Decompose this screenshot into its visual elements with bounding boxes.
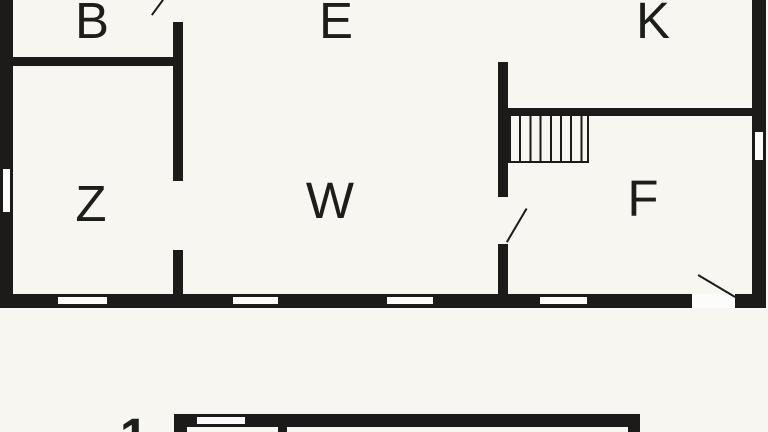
plan2-wall-left-corner	[174, 414, 187, 432]
window-right-wall	[755, 132, 763, 160]
floor-number-label: 1	[120, 411, 148, 432]
staircase	[507, 116, 589, 163]
room-label-w: W	[306, 175, 354, 226]
wall-wf-stub	[498, 244, 508, 294]
window-bottom-1	[58, 297, 107, 304]
room-label-f: F	[627, 173, 658, 224]
outer-wall-left	[0, 0, 13, 308]
floorplan-diagram: B E K Z W F 1	[0, 0, 768, 432]
wall-k-f-divider	[498, 108, 766, 116]
door-leaf-room-b	[151, 0, 164, 16]
plan2-interior-wall-stub	[278, 426, 287, 432]
outer-wall-bottom	[0, 294, 766, 308]
door-leaf-room-w	[506, 207, 528, 242]
window-bottom-4	[540, 297, 587, 304]
wall-b-z-divider	[0, 57, 183, 66]
room-label-z: Z	[75, 178, 106, 229]
window-left-wall	[3, 169, 10, 212]
wall-zw-stub	[173, 250, 183, 294]
window-bottom-2	[233, 297, 278, 304]
window-bottom-3	[387, 297, 433, 304]
room-label-e: E	[319, 0, 353, 46]
room-label-k: K	[636, 0, 670, 46]
room-label-b: B	[75, 0, 109, 46]
plan2-wall-right-corner	[628, 414, 640, 432]
wall-be-zw-divider	[173, 22, 183, 181]
plan2-window-top	[197, 417, 245, 424]
door-opening-bottom-right	[692, 294, 735, 308]
